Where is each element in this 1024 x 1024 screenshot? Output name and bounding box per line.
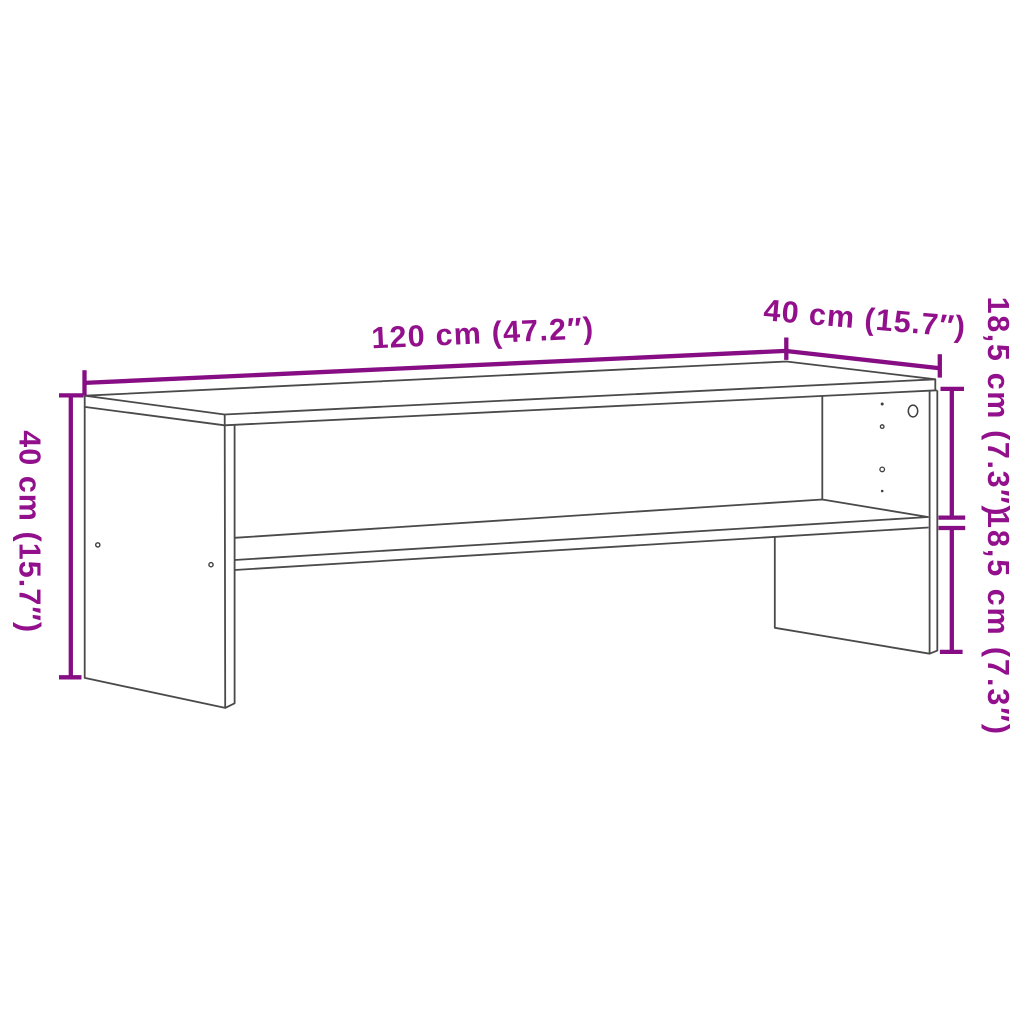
svg-text:40 cm (15.7″): 40 cm (15.7″) xyxy=(762,293,966,344)
svg-text:18,5 cm (7.3″): 18,5 cm (7.3″) xyxy=(981,297,1015,516)
svg-text:40 cm (15.7″): 40 cm (15.7″) xyxy=(13,430,47,632)
svg-text:18,5 cm (7.3″): 18,5 cm (7.3″) xyxy=(981,511,1015,734)
svg-text:120 cm (47.2″): 120 cm (47.2″) xyxy=(371,311,594,355)
